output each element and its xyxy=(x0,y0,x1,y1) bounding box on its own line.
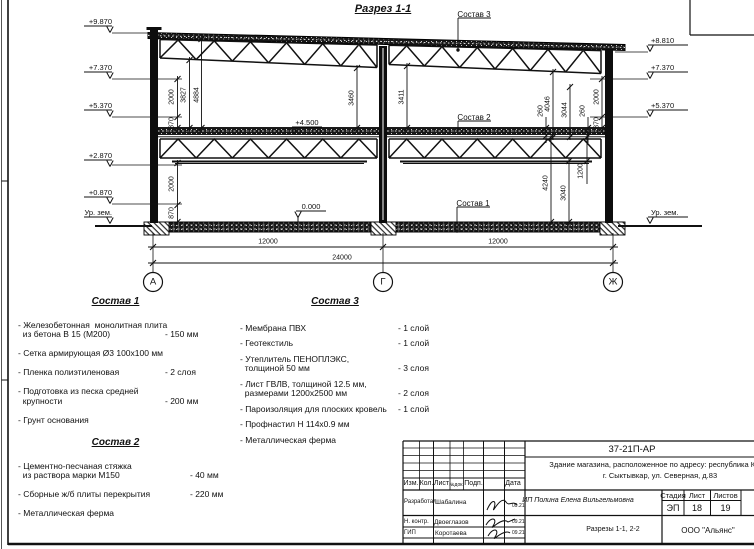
stage-value: ЭП xyxy=(667,503,680,513)
dim-label: 4240 xyxy=(542,175,549,191)
object-address-line1: Здание магазина, расположенное по адресу… xyxy=(549,460,754,469)
tb-col-list: Лист xyxy=(434,480,449,487)
spec-item-value: - 150 мм xyxy=(165,330,198,340)
foundation-pad xyxy=(600,222,625,235)
elevation-label: +9.870 xyxy=(70,17,112,26)
spec-item-value: - 40 мм xyxy=(190,471,219,481)
spec-item-name: - Пароизоляция для плоских кровель xyxy=(240,404,387,414)
tb-col-podp: Подп. xyxy=(464,480,483,487)
dim-label: 3040 xyxy=(560,185,567,201)
tb-name: Коротаева xyxy=(435,530,467,537)
dim-label: 260 xyxy=(537,105,544,117)
ground-level-label: Ур. зем. xyxy=(651,208,693,217)
spec-item-value: - 220 мм xyxy=(190,490,223,500)
elevation-label: +5.370 xyxy=(70,101,112,110)
sheets-total: 19 xyxy=(720,503,730,513)
dim-label: 3411 xyxy=(398,89,405,104)
sheets-label: Листов xyxy=(713,491,737,500)
spec-block-3: Состав 3 - Мембрана ПВХ- 1 слой - Геотек… xyxy=(240,297,485,445)
elevation-label: +5.370 xyxy=(651,101,693,110)
wall-column-zh xyxy=(605,49,613,223)
tb-name: Двоеглазов xyxy=(434,519,469,526)
parapet-cap xyxy=(147,27,162,30)
doc-number: 37-21П-АР xyxy=(609,444,656,455)
dim-label: 12000 xyxy=(258,239,277,246)
dim-label: 3044 xyxy=(561,102,568,118)
wall-column-a xyxy=(150,28,158,223)
tb-col-kol: Кол. xyxy=(420,480,434,487)
spec-item-value: - 3 слоя xyxy=(398,364,429,374)
dim-label: 870 xyxy=(593,117,600,129)
level-mark: 0.000 xyxy=(302,202,321,211)
dim-label: 4884 xyxy=(193,87,200,103)
tb-name: Шабалина xyxy=(435,499,466,506)
dim-label: 870 xyxy=(168,207,175,219)
foundation-pad xyxy=(144,222,169,235)
spec-title: Состав 1 xyxy=(18,297,213,307)
axis-label-a: А xyxy=(143,277,163,288)
tb-date: 09.21 xyxy=(512,519,525,525)
spec-block-1: Состав 1 - Железобетонная монолитная пли… xyxy=(18,297,218,425)
spec-item-name: - Лист ГВЛВ, толщиной 12.5 мм, размерами… xyxy=(240,379,367,399)
spec-item-value: - 2 слоя xyxy=(398,389,429,399)
spec-item-name: - Мембрана ПВХ xyxy=(240,323,306,333)
tb-date: 09.21 xyxy=(512,530,525,536)
elevation-label: +2.870 xyxy=(70,151,112,160)
leader-label-sostav3: Состав 3 xyxy=(457,10,490,19)
dim-label: 2000 xyxy=(168,176,175,192)
sheet-label: Лист xyxy=(689,491,705,500)
tb-col-ndok: №док. xyxy=(449,482,464,488)
spec-title: Состав 2 xyxy=(18,438,213,448)
spec-item-value: - 1 слой xyxy=(398,339,429,349)
dim-label: 260 xyxy=(579,105,586,117)
tb-role: Разработал xyxy=(404,499,437,505)
spec-title: Состав 3 xyxy=(240,297,430,307)
dim-label: 2000 xyxy=(168,89,175,105)
spec-item-name: - Грунт основания xyxy=(18,415,89,425)
elevation-label: +8.810 xyxy=(651,36,693,45)
spec-item-name: - Подготовка из песка средней крупности xyxy=(18,386,139,406)
stage-label: Стадия xyxy=(660,491,686,500)
spec-block-2: Состав 2 - Цементно-песчаная стяжка из р… xyxy=(18,438,248,519)
spec-item-name: - Профнастил Н 114х0.9 мм xyxy=(240,419,350,429)
elevation-label: +7.370 xyxy=(70,63,112,72)
spec-item-name: - Металлическая ферма xyxy=(240,435,336,445)
organization: ООО "Альянс" xyxy=(681,526,735,535)
dim-label: 4046 xyxy=(544,96,551,112)
spec-item-name: - Пленка полиэтиленовая xyxy=(18,367,119,377)
spec-item-value: - 2 слоя xyxy=(165,368,196,378)
dim-label: 12000 xyxy=(488,239,507,246)
leader-label-sostav1: Состав 1 xyxy=(456,199,489,208)
dim-label: 3460 xyxy=(348,90,355,106)
spec-item-value: - 200 мм xyxy=(165,397,198,407)
tb-col-data: Дата xyxy=(505,480,521,487)
sheet-number: 18 xyxy=(692,503,702,513)
dim-label: 1200 xyxy=(577,163,584,179)
spec-item-value: - 1 слой xyxy=(398,324,429,334)
level-mark: +4.500 xyxy=(295,118,318,127)
spec-item-name: - Геотекстиль xyxy=(240,338,293,348)
spec-item-name: - Утеплитель ПЕНОПЛЭКС, толщиной 50 мм xyxy=(240,354,349,374)
spec-item-name: - Сетка армирующая Ø3 100х100 мм xyxy=(18,348,163,358)
elevation-label: +0.870 xyxy=(70,188,112,197)
tb-role: Н. контр. xyxy=(404,519,429,525)
axis-label-g: Г xyxy=(373,277,393,288)
spec-item-name: - Сборные ж/б плиты перекрытия xyxy=(18,489,150,499)
axis-label-zh: Ж xyxy=(603,277,623,288)
dim-label: 2000 xyxy=(593,89,600,105)
leader-label-sostav2: Состав 2 xyxy=(457,113,490,122)
spec-item-name: - Железобетонная монолитная плита из бет… xyxy=(18,320,167,340)
spec-item-name: - Металлическая ферма xyxy=(18,508,114,518)
spec-item-value: - 1 слой xyxy=(398,405,429,415)
foundation-pad xyxy=(371,222,396,235)
drawing-title: Разрез 1-1 xyxy=(355,3,411,15)
drawing-sheet: Разрез 1-1 Состав 3 Состав 2 Состав 1 +4… xyxy=(0,0,754,549)
dim-label: 24000 xyxy=(332,255,351,262)
dim-label: 870 xyxy=(168,117,175,129)
designer-name: ИП Полина Елена Вильгельмовна xyxy=(522,497,634,504)
tb-col-izm: Изм. xyxy=(404,480,419,487)
tb-role: ГИП xyxy=(404,530,416,536)
sheet-title: Разрезы 1-1, 2-2 xyxy=(586,526,639,533)
spec-item-name: - Цементно-песчаная стяжка из раствора м… xyxy=(18,461,132,481)
elevation-label: +7.370 xyxy=(651,63,693,72)
object-address-line2: г. Сыктывкар, ул. Северная, д.83 xyxy=(603,471,717,480)
ground-level-label: Ур. зем. xyxy=(70,208,112,217)
dim-label: 3827 xyxy=(181,87,188,103)
